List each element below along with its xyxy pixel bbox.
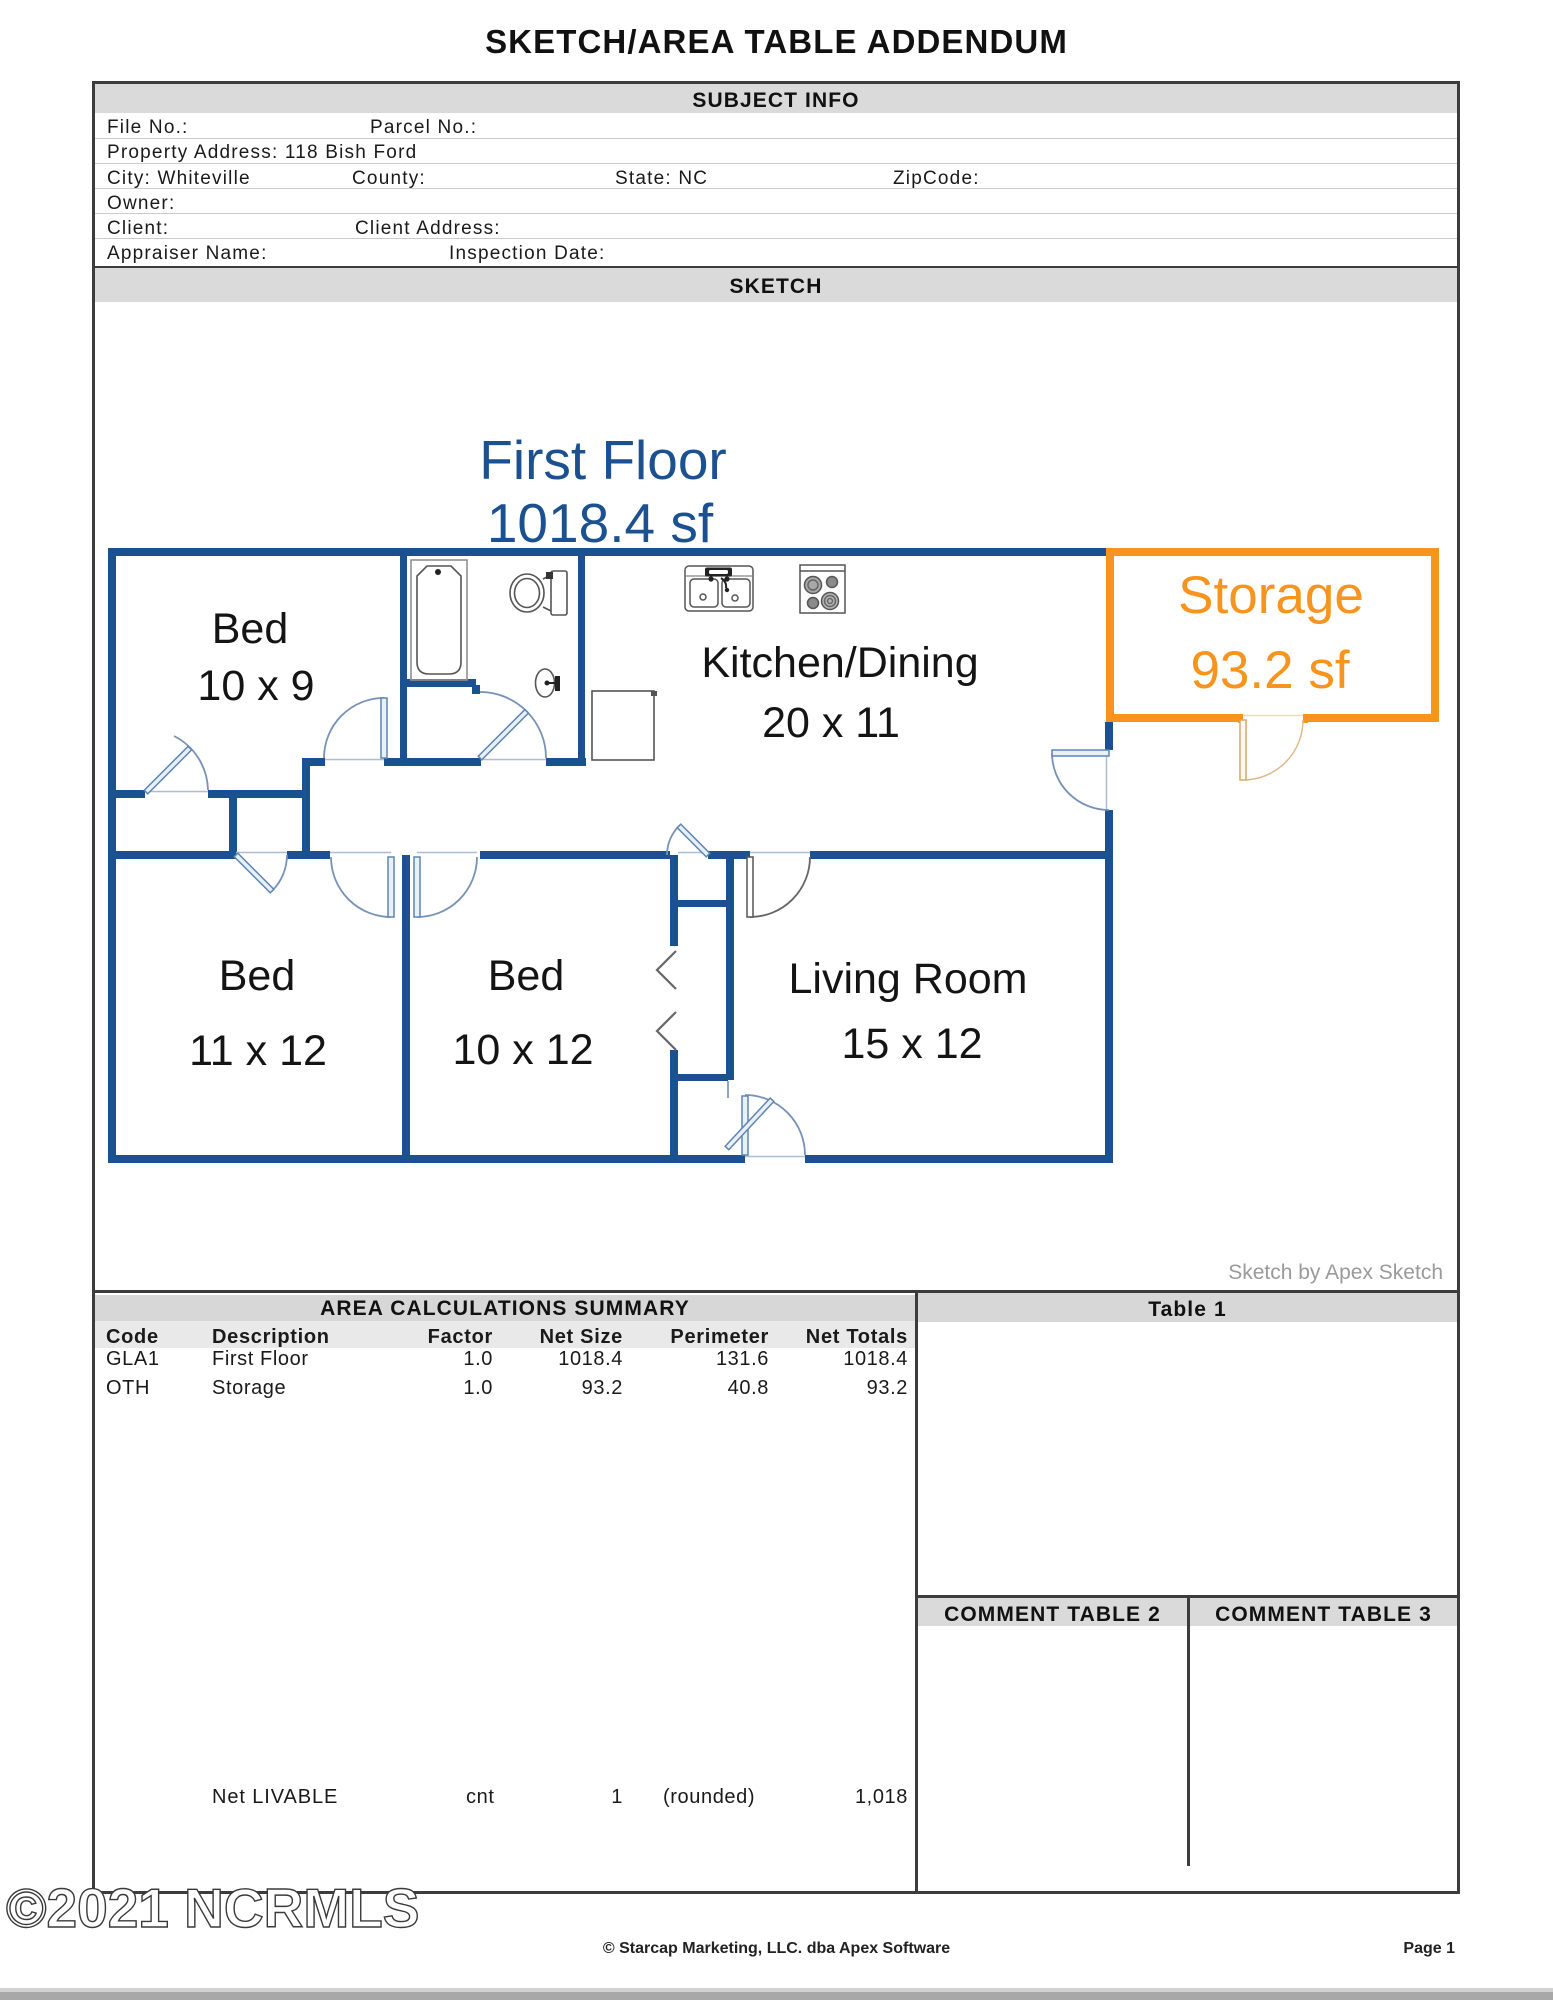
svg-text:Bed: Bed <box>219 952 296 1000</box>
svg-text:Bed: Bed <box>212 605 289 653</box>
svg-text:11 x 12: 11 x 12 <box>189 1027 327 1075</box>
svg-text:20 x 11: 20 x 11 <box>762 699 900 747</box>
svg-text:Bed: Bed <box>488 952 565 1000</box>
svg-text:Living Room: Living Room <box>789 955 1028 1003</box>
svg-text:1018.4 sf: 1018.4 sf <box>487 492 714 554</box>
svg-text:93.2 sf: 93.2 sf <box>1190 641 1349 700</box>
svg-text:15 x 12: 15 x 12 <box>841 1020 982 1068</box>
svg-text:10 x 12: 10 x 12 <box>452 1026 593 1074</box>
svg-text:Kitchen/Dining: Kitchen/Dining <box>701 639 978 687</box>
svg-text:Storage: Storage <box>1178 566 1364 625</box>
svg-text:10 x 9: 10 x 9 <box>197 662 314 710</box>
svg-text:First Floor: First Floor <box>479 429 727 491</box>
